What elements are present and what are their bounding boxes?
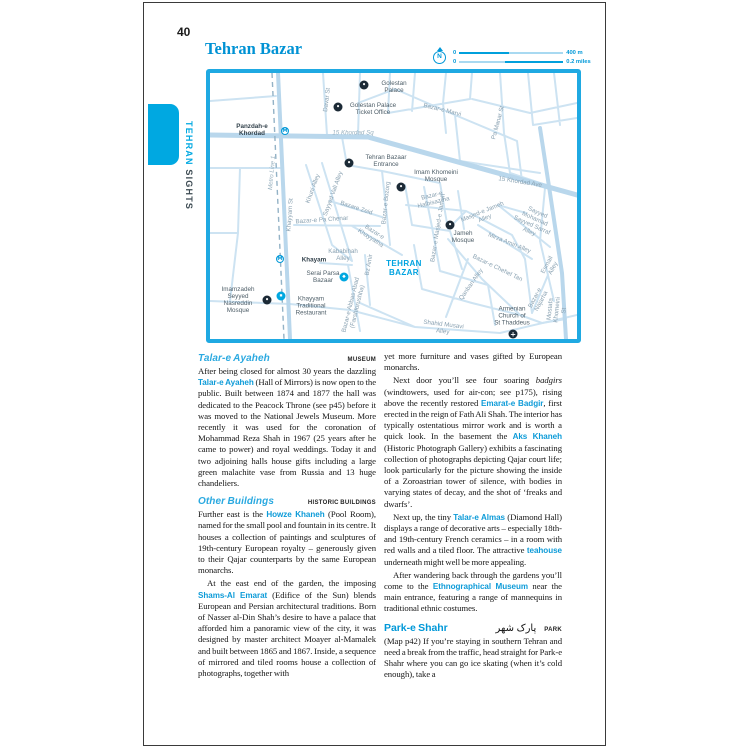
map-marker-poi-icon: • (446, 221, 455, 230)
poi-category: PARK (544, 627, 562, 633)
poi-heading: Park-e Shahrپارک شهرPARK (384, 622, 562, 634)
section-title: Talar-e Ayaheh (198, 353, 270, 364)
map-marker-church-icon: + (509, 330, 518, 339)
map-marker-metro-icon: M (276, 255, 284, 263)
poi-title-farsi: پارک شهر (495, 623, 536, 634)
article-paragraph: After being closed for almost 30 years t… (198, 366, 376, 489)
poi-title: Park-e Shahr (384, 622, 448, 634)
article-paragraph: yet more furniture and vases gifted by E… (384, 351, 562, 373)
article-paragraph: Further east is the Howze Khaneh (Pool R… (198, 509, 376, 576)
map-marker-poi-icon: • (345, 159, 354, 168)
article-paragraph: At the east end of the garden, the impos… (198, 578, 376, 679)
chapter-tab-label: TEHRAN SIGHTS (184, 121, 194, 210)
map-marker-metro-icon: M (281, 127, 289, 135)
map-canvas: Davar StGolestan PalaceGolestan Palace T… (210, 73, 577, 339)
map-marker-shop-icon: ◆ (340, 273, 349, 282)
chapter-tab-secondary: SIGHTS (184, 166, 194, 210)
guidebook-page: 40 TEHRAN SIGHTS Tehran Bazar N 0 400 m … (143, 2, 606, 746)
page-number: 40 (177, 25, 190, 39)
map-title: Tehran Bazar (205, 39, 302, 59)
article-column-right: yet more furniture and vases gifted by E… (384, 351, 562, 682)
map-marker-poi-icon: • (334, 103, 343, 112)
book-page-photo: { "colors": { "accent_blue": "#00a8e1", … (0, 0, 750, 750)
scale-bar-imperial: 0 0.2 miles (453, 59, 583, 65)
map-scale: N 0 400 m 0 0.2 miles (433, 48, 583, 70)
map-marker-poi-icon: • (263, 296, 272, 305)
article-paragraph: Next door you’ll see four soaring badgir… (384, 375, 562, 509)
section-category: HISTORIC BUILDINGS (308, 500, 376, 506)
section-category: MUSEUM (348, 357, 376, 363)
north-arrow-icon: N (433, 51, 446, 64)
tehran-bazar-map: Davar StGolestan PalaceGolestan Palace T… (206, 69, 581, 343)
article-paragraph: Next up, the tiny Talar-e Almas (Diamond… (384, 512, 562, 568)
scale-bar-metric: 0 400 m (453, 50, 583, 56)
map-marker-rest-icon: ▪ (277, 292, 286, 301)
article-paragraph: (Map p42) If you’re staying in southern … (384, 636, 562, 681)
section-heading: Other BuildingsHISTORIC BUILDINGS (198, 496, 376, 507)
section-title: Other Buildings (198, 496, 274, 507)
article-column-left: Talar-e AyahehMUSEUMAfter being closed f… (198, 351, 376, 681)
article-paragraph: After wandering back through the gardens… (384, 570, 562, 615)
map-marker-poi-icon: • (397, 183, 406, 192)
chapter-tab (148, 104, 179, 165)
chapter-tab-primary: TEHRAN (184, 121, 194, 166)
map-marker-poi-icon: • (360, 81, 369, 90)
section-heading: Talar-e AyahehMUSEUM (198, 353, 376, 364)
